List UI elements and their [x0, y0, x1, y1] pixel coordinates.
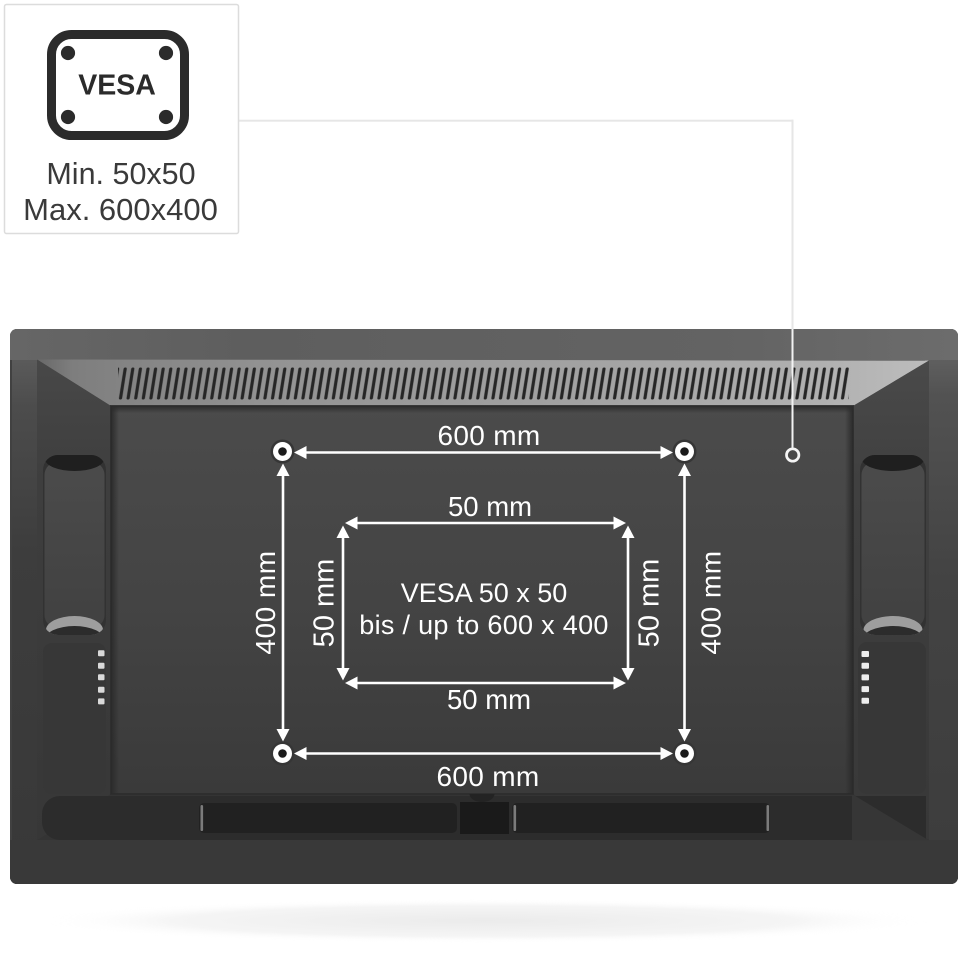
svg-text:50 mm: 50 mm	[634, 559, 666, 648]
svg-text:50 mm: 50 mm	[309, 559, 341, 648]
svg-text:bis / up to 600 x 400: bis / up to 600 x 400	[359, 610, 608, 640]
svg-text:400 mm: 400 mm	[696, 550, 727, 654]
svg-text:VESA 50 x 50: VESA 50 x 50	[401, 578, 568, 608]
svg-text:Max. 600x400: Max. 600x400	[23, 192, 218, 227]
svg-text:Min. 50x50: Min. 50x50	[46, 157, 195, 191]
svg-text:600 mm: 600 mm	[437, 761, 540, 792]
svg-text:400 mm: 400 mm	[250, 550, 281, 654]
svg-text:VESA: VESA	[78, 70, 156, 102]
svg-text:50 mm: 50 mm	[447, 684, 531, 715]
svg-text:50 mm: 50 mm	[448, 491, 532, 522]
svg-text:600 mm: 600 mm	[438, 420, 541, 451]
